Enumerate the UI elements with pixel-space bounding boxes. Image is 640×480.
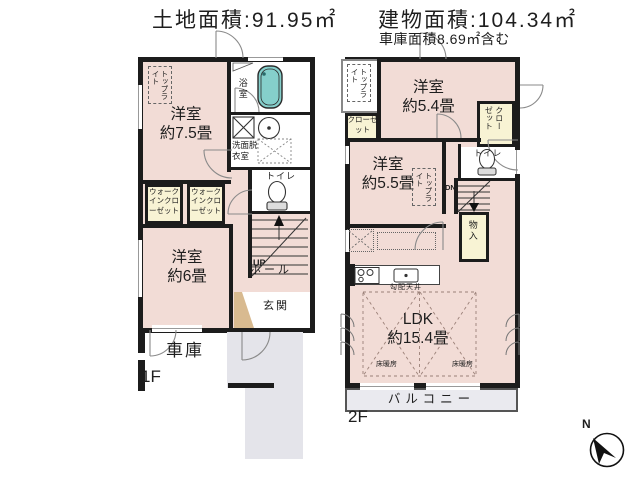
floor-plan-canvas: 土地面積:91.95㎡ 建物面積:104.34㎡ 車庫面積8.69㎡含む 洋室 …: [0, 0, 640, 480]
toilet1f-label: トイレ: [256, 171, 306, 182]
room-size: 約15.4畳: [372, 329, 464, 348]
driveway-step-bar: [228, 383, 274, 388]
entrance-label: 玄関: [248, 300, 304, 313]
room-size: 約5.4畳: [380, 97, 477, 116]
balcony-label: バルコニー: [345, 392, 518, 407]
floor-heating-label: 床暖房: [376, 361, 397, 369]
land-area-label: 土地面積:91.95㎡: [152, 8, 337, 33]
floor1-label: 1F: [141, 367, 161, 387]
storage-label: 物入: [467, 220, 478, 242]
room-name: LDK: [372, 310, 464, 329]
floor-heating-label: 床暖房: [452, 361, 473, 369]
building-area-label: 建物面積:104.34㎡: [378, 8, 577, 33]
room-name: 洋室: [380, 78, 477, 97]
wall: [458, 178, 515, 181]
compass-icon: [591, 434, 624, 467]
wall: [350, 264, 355, 286]
kitchen-counter: [352, 265, 440, 285]
wall: [442, 142, 446, 214]
bedroom-5-4-label: 洋室 約5.4畳: [380, 78, 477, 117]
counter-dotted-1: [347, 229, 374, 252]
garage-wall-stub: [138, 333, 145, 353]
driveway-area: [245, 388, 303, 459]
wall: [458, 144, 461, 180]
wall: [248, 170, 252, 278]
wall: [345, 138, 481, 142]
bedroom-6-label: 洋室 約6畳: [143, 248, 231, 287]
plan-linework: [0, 0, 640, 480]
closet-left-label: クローゼット: [347, 115, 378, 135]
skylight-label-1f: トップライト: [148, 66, 172, 104]
skylight-stairwell-label: トップライト: [347, 64, 371, 102]
closet-right-label: クローゼット: [483, 106, 504, 135]
room-name: 洋室: [143, 105, 229, 124]
garage-area-note: 車庫面積8.69㎡含む: [379, 31, 510, 48]
walk-in-closet-2-label: ウォークインクローゼット: [189, 187, 223, 215]
compass-north-label: N: [582, 417, 591, 431]
ldk-label: LDK 約15.4畳: [372, 310, 464, 349]
sloped-ceiling-label: 勾配天井: [390, 284, 422, 292]
wall: [143, 224, 231, 228]
wall: [231, 112, 310, 115]
room-name: 洋室: [143, 248, 231, 267]
driveway-area: [227, 332, 303, 388]
wall: [231, 167, 310, 170]
room-size: 約6畳: [143, 267, 231, 286]
room-size: 約7.5畳: [143, 124, 229, 143]
washroom-label: 洗面脱衣室: [232, 140, 259, 162]
stairs-dn-label: DN: [445, 183, 456, 192]
wall: [252, 211, 310, 214]
counter-dotted-2: [377, 232, 436, 250]
bedroom-7-5-label: 洋室 約7.5畳: [143, 105, 229, 144]
toilet2f-label: トイレ: [464, 148, 512, 158]
wall: [143, 180, 231, 184]
garage-label: 車庫: [166, 341, 204, 361]
floor2-label: 2F: [348, 407, 368, 427]
bath-label: 浴室: [237, 78, 248, 100]
walk-in-closet-1-label: ウォークインクローゼット: [147, 187, 181, 215]
hall-label: ホール: [240, 264, 302, 277]
skylight-room-label: トップライト: [412, 168, 436, 206]
wall: [345, 224, 446, 228]
